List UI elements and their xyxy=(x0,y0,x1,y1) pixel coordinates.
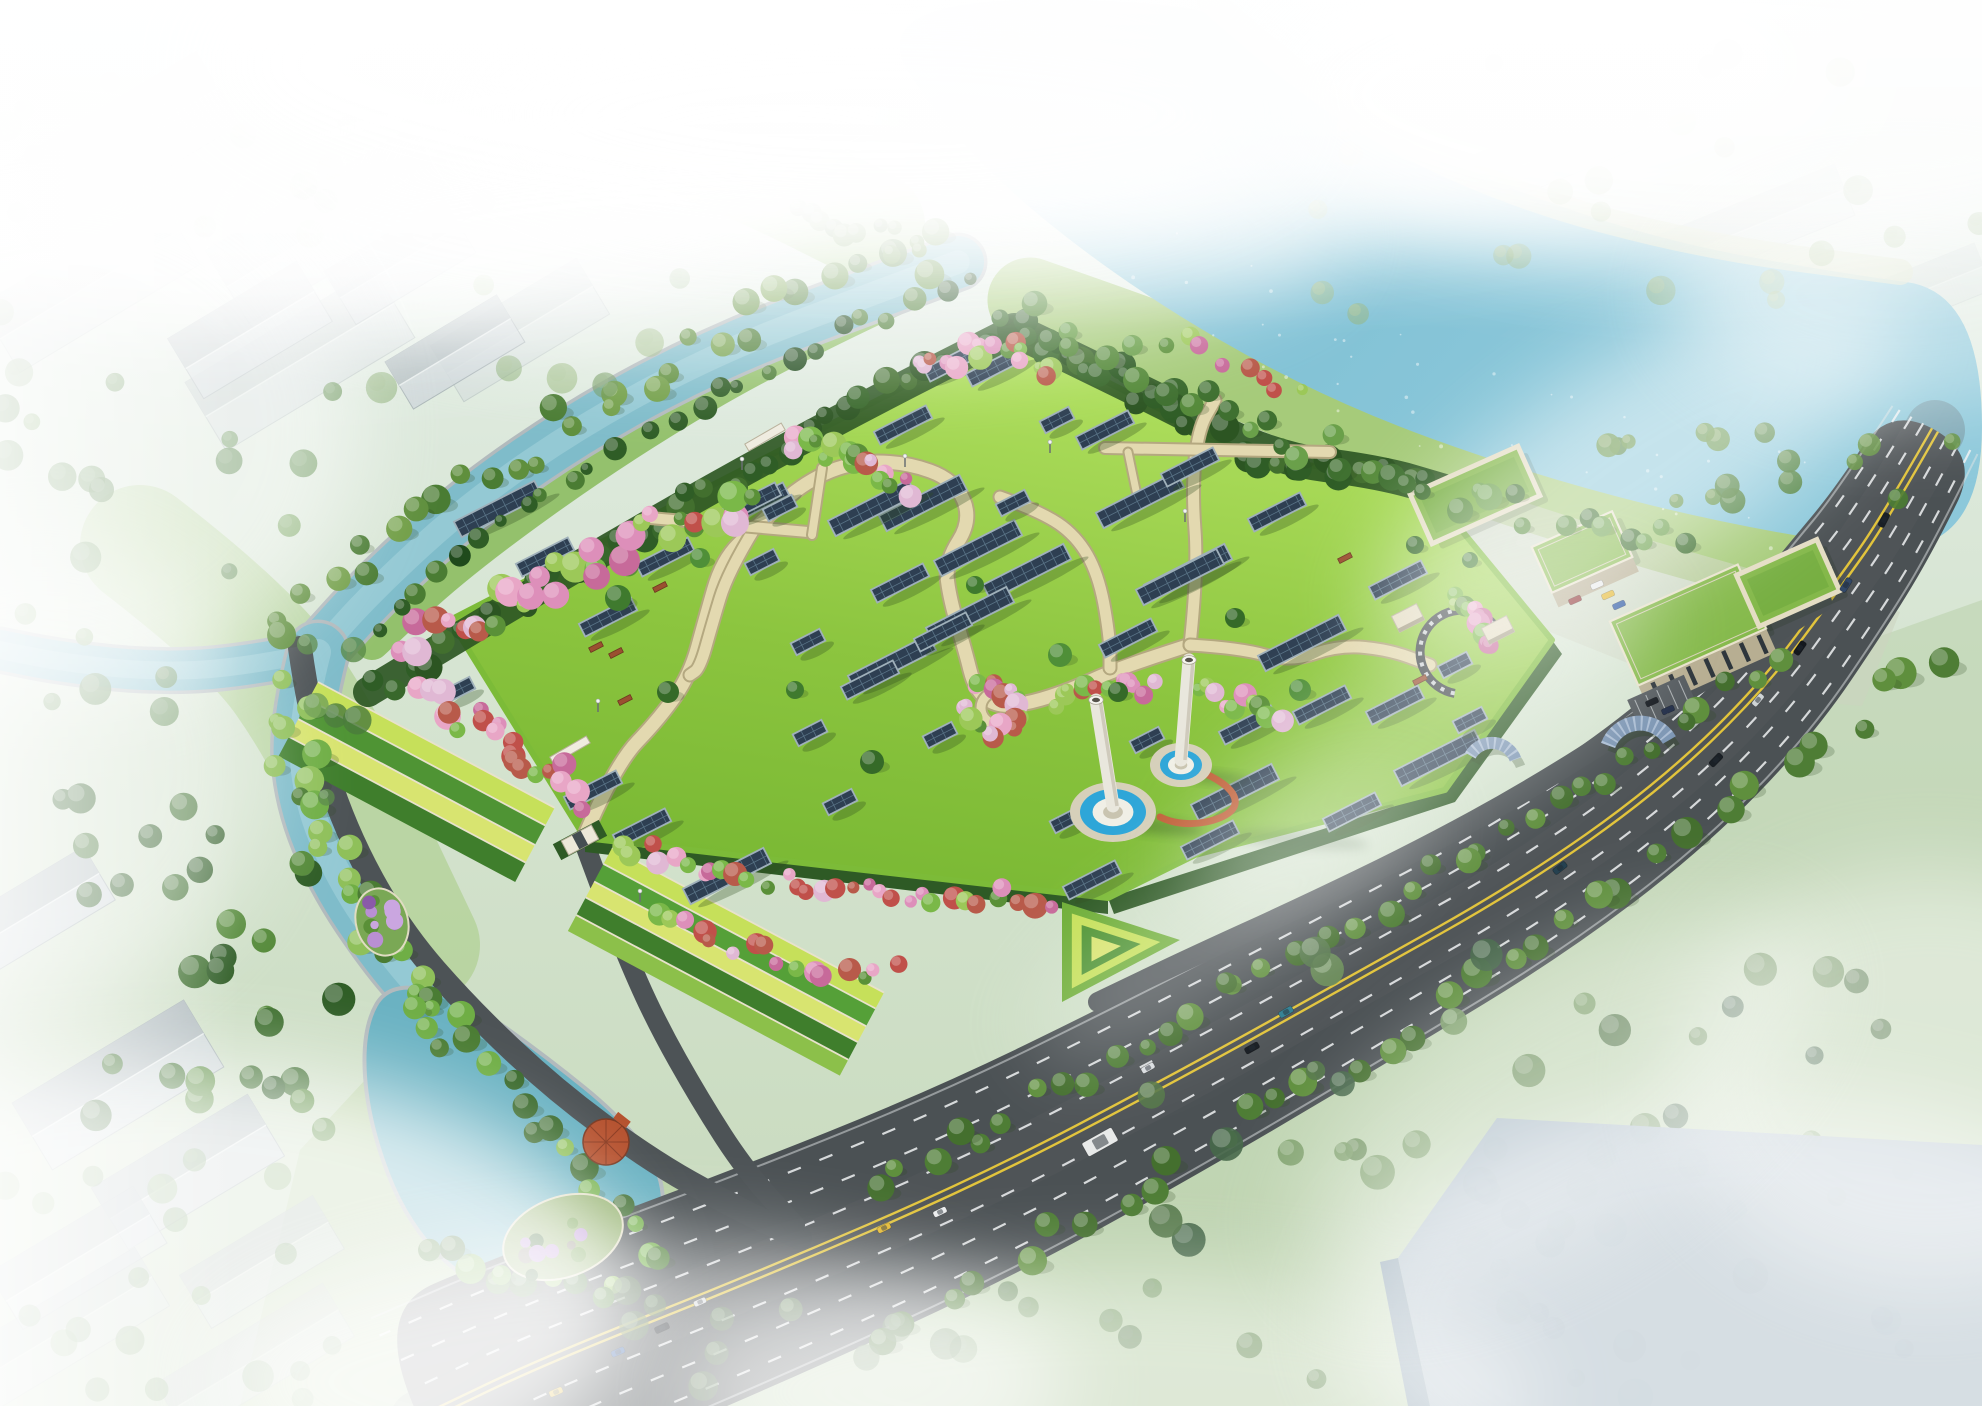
aerial-site-rendering xyxy=(0,0,1982,1406)
aerial-rendering-stage xyxy=(0,0,1982,1406)
